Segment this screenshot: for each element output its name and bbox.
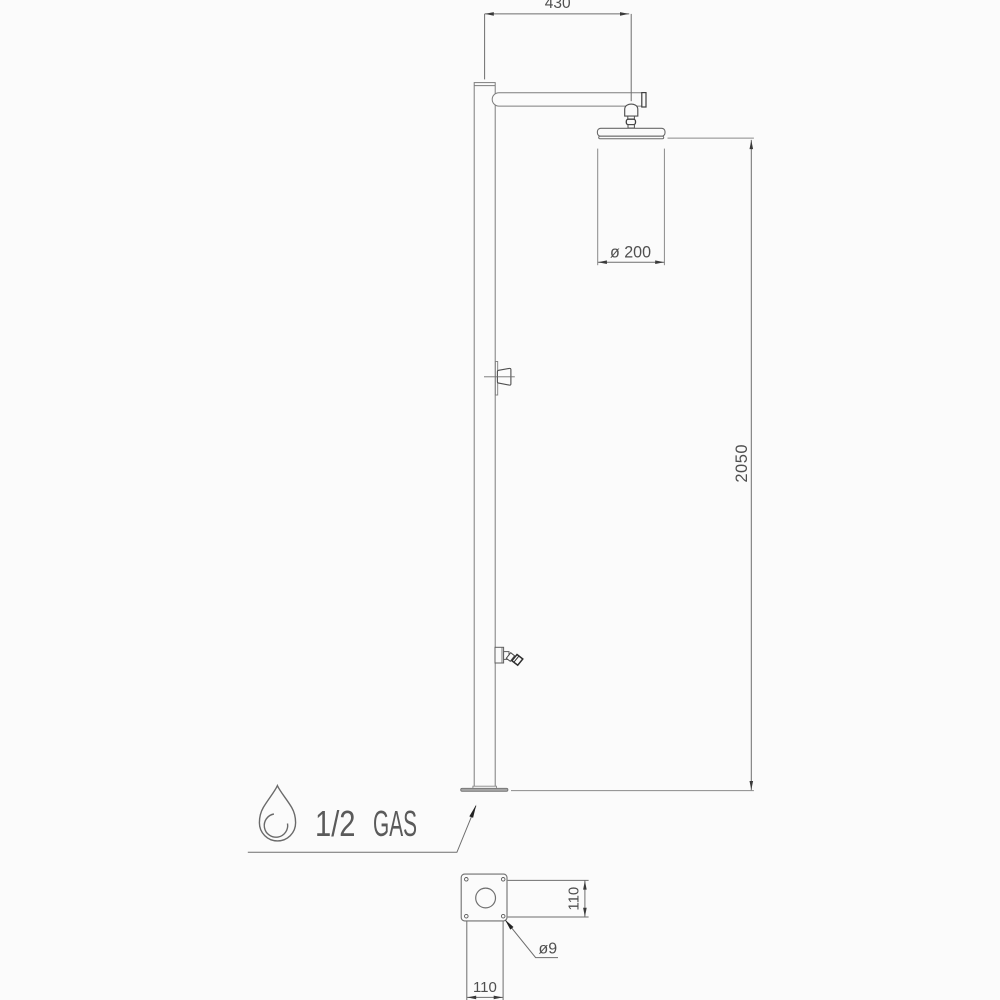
svg-text:110: 110: [473, 979, 497, 996]
svg-text:ø9: ø9: [539, 940, 558, 957]
svg-text:430: 430: [545, 0, 571, 12]
svg-text:GAS: GAS: [373, 803, 417, 844]
svg-text:2050: 2050: [733, 444, 751, 483]
svg-text:110: 110: [566, 887, 583, 911]
svg-text:ø 200: ø 200: [610, 242, 651, 261]
svg-text:1/2: 1/2: [315, 803, 356, 844]
